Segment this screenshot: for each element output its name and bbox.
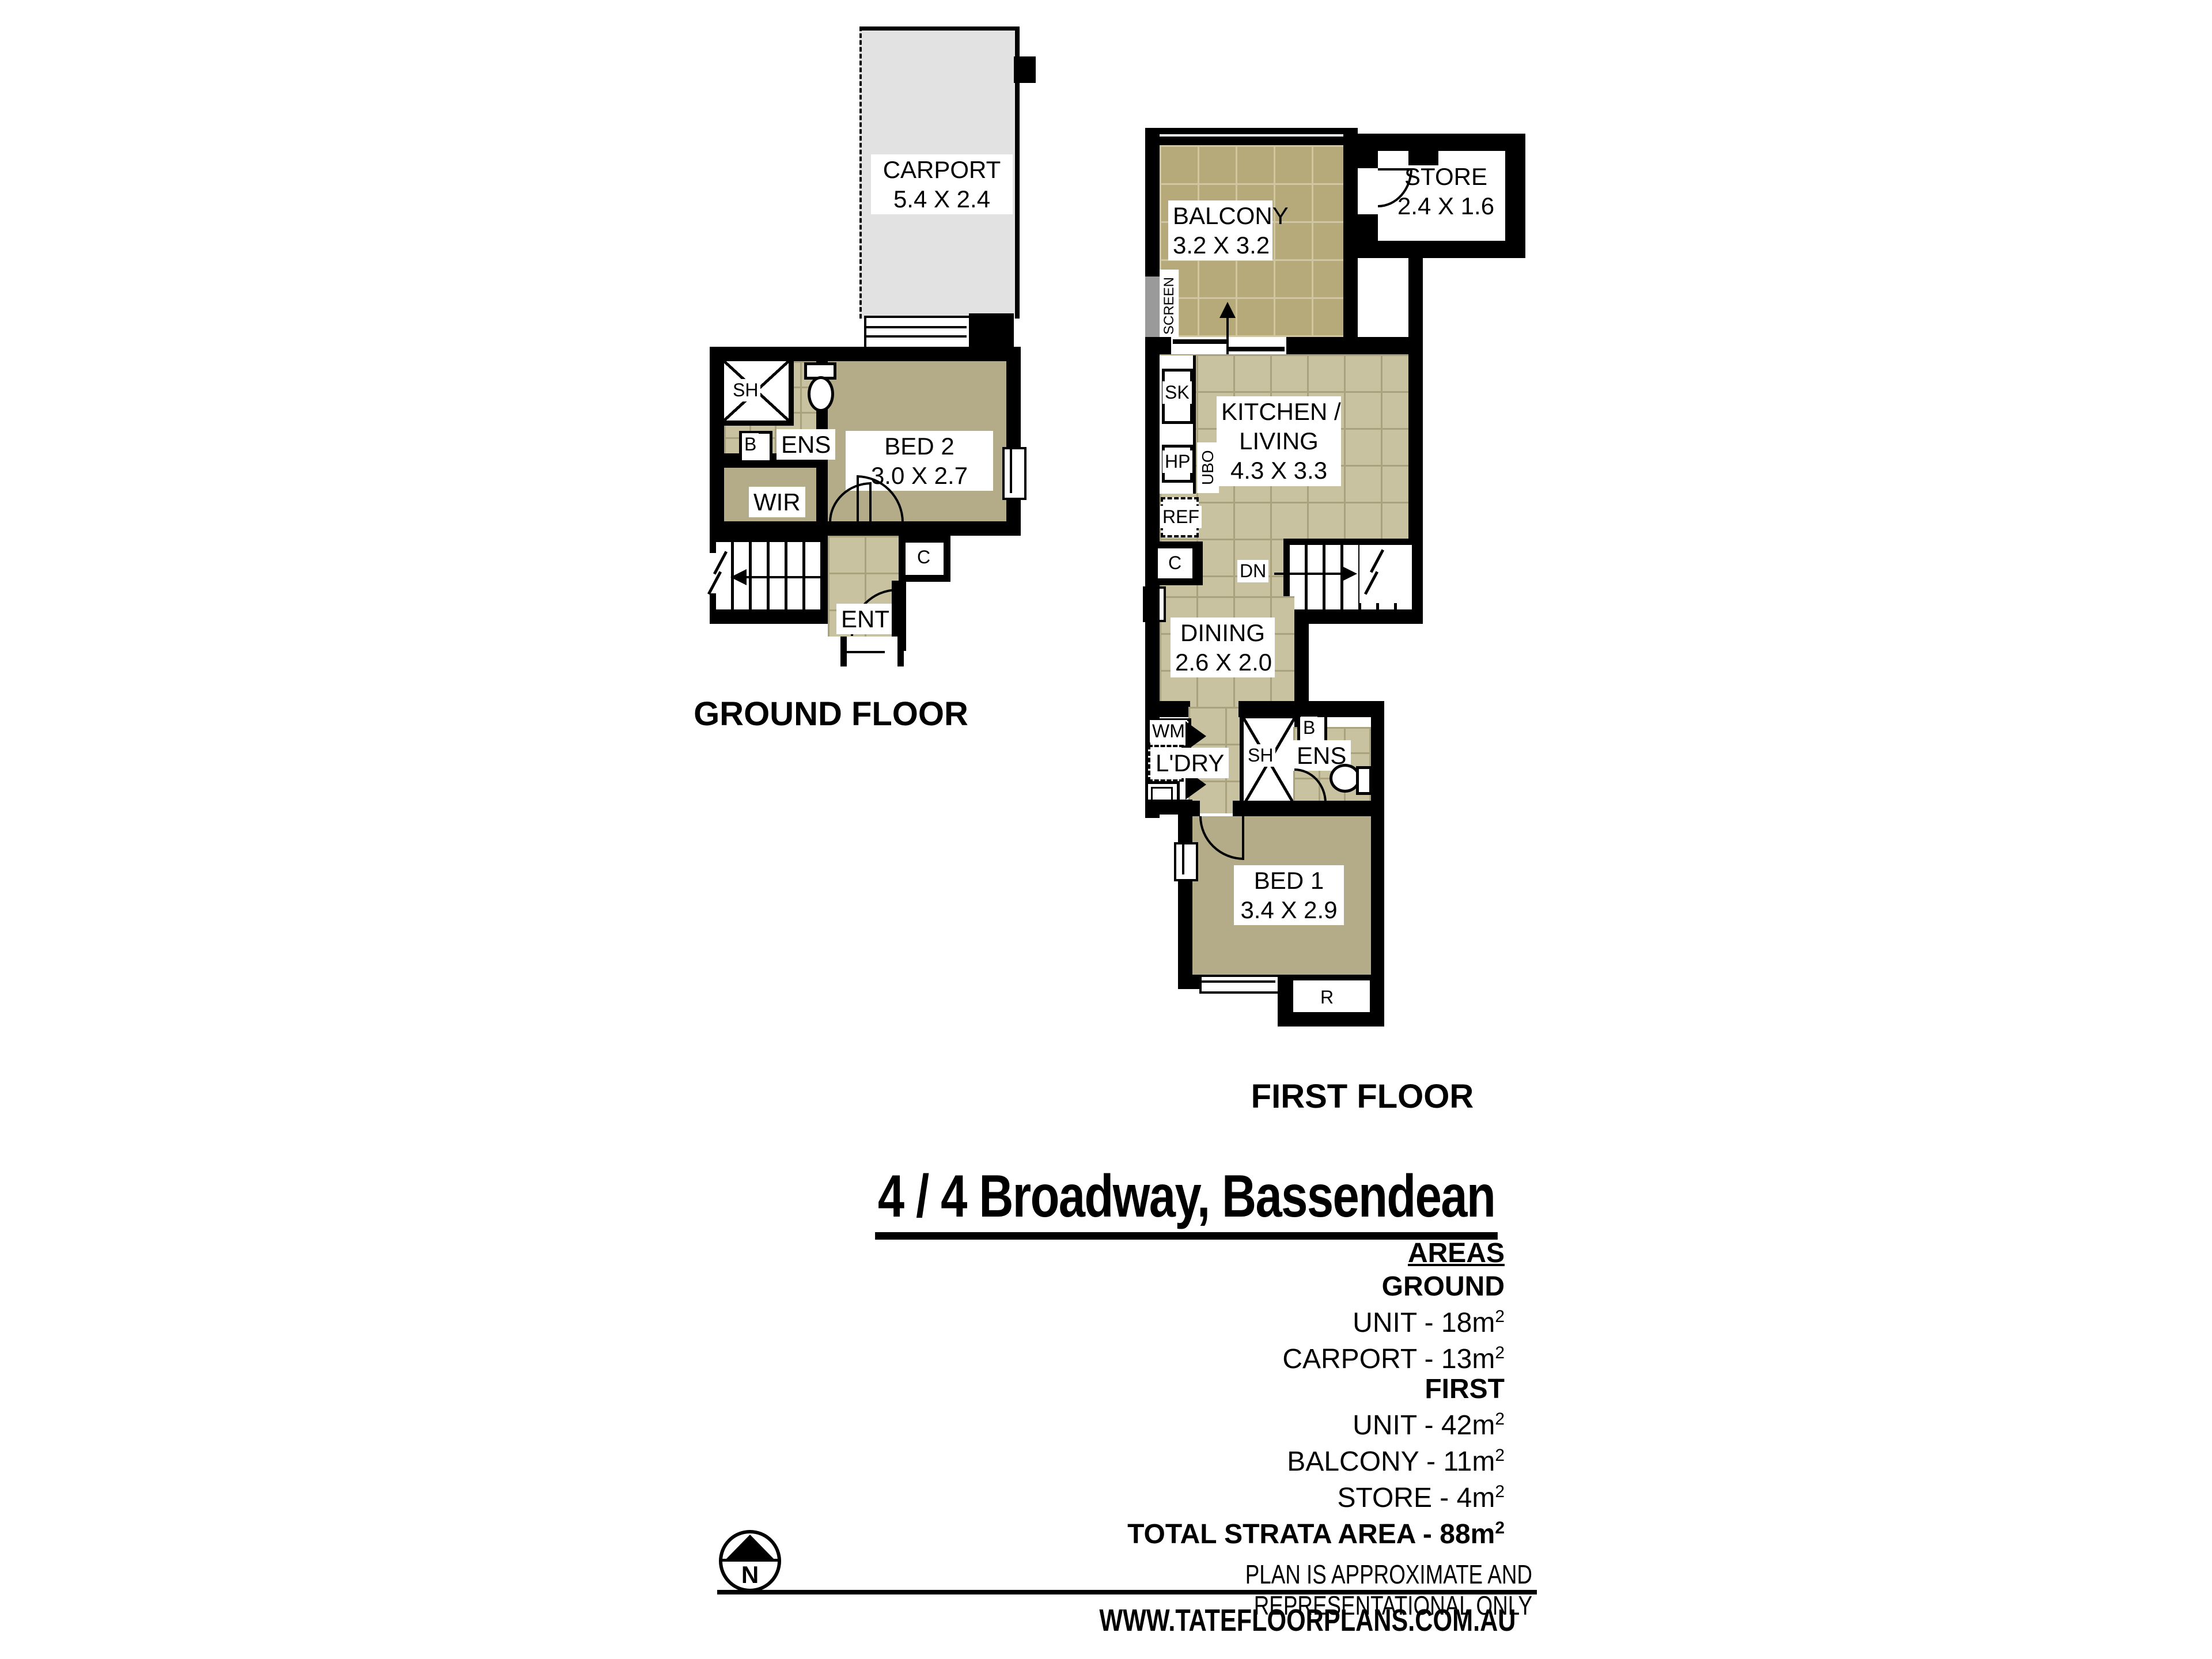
carport-dims: 5.4 X 2.4 [876,184,1008,214]
store-name: STORE [1394,162,1498,191]
areas-ground-heading: GROUND [922,1272,1505,1302]
ubo-label: UBO [1197,442,1219,493]
ent-label: ENT [836,604,894,634]
dining-name: DINING [1175,618,1270,647]
kitchen-dims: 4.3 X 3.3 [1221,456,1336,485]
stair-arrow-line [1274,573,1342,575]
north-triangle [725,1535,775,1560]
wall [1014,56,1036,83]
areas-first-heading: FIRST [922,1374,1505,1404]
kitchen-name1: KITCHEN / [1221,397,1336,426]
wall [1145,337,1171,354]
wall [1178,801,1192,975]
sliding-door-leaf [1173,339,1228,344]
toilet-tank-first [1356,766,1372,795]
screen-strip [1145,276,1160,337]
areas-table: AREAS GROUND UNIT - 18m2 CARPORT - 13m2 … [922,1238,1505,1550]
dining-dims: 2.6 X 2.0 [1175,647,1270,677]
window-mullion [1182,844,1184,874]
robe-label: R [1318,986,1336,1009]
area-row: CARPORT - 13m2 [922,1338,1505,1374]
wall [1408,258,1423,339]
bed1-name: BED 1 [1238,866,1339,895]
ground-floor-title: GROUND FLOOR [680,695,982,733]
entry-arrow-head [1219,302,1236,318]
area-row: STORE - 4m2 [922,1477,1505,1513]
shower-first-label: SH [1245,744,1275,767]
window [1174,842,1198,881]
dn-label: DN [1237,560,1268,582]
floorplan-page: CARPORT 5.4 X 2.4 SH B ENS WIR BED 2 3.0… [0,0,2212,1659]
sliding-door-leaf [1227,347,1285,351]
garage-door-line [866,335,967,338]
bed1-dims: 3.4 X 2.9 [1238,895,1339,925]
garage-door-line [866,326,967,328]
stair-arrow-head [730,569,747,585]
north-compass-icon: N [719,1530,781,1592]
hotplate-label: HP [1162,450,1192,473]
porch-step-line [847,651,885,653]
basin-label: B [742,433,759,456]
ldry-label: L'DRY [1151,748,1229,778]
balcony-label: BALCONY 3.2 X 3.2 [1168,200,1272,260]
fridge-label: REF [1160,506,1202,528]
stair-arrow-head [1341,566,1357,582]
store-label: STORE 2.4 X 1.6 [1389,161,1502,221]
page-title: 4 / 4 Broadway, Bassendean [783,1162,1590,1240]
wall [1145,128,1358,145]
bed2-name: BED 2 [850,431,988,461]
kitchen-name2: LIVING [1221,426,1336,456]
balcony-dims: 3.2 X 3.2 [1173,230,1268,260]
cupboard-label: C [915,546,933,569]
area-row: BALCONY - 11m2 [922,1441,1505,1477]
screen-label: SCREEN [1160,270,1179,342]
carport-label: CARPORT 5.4 X 2.4 [871,154,1013,214]
wall [1371,819,1384,975]
wall [1233,801,1384,816]
balcony-name: BALCONY [1173,201,1268,230]
page-title-text: 4 / 4 Broadway, Bassendean [876,1162,1498,1240]
footer-rule [717,1590,1537,1594]
garage-door [864,316,974,349]
areas-total-row: TOTAL STRATA AREA - 88m2 [922,1513,1505,1550]
wall [710,609,828,624]
area-row: UNIT - 42m2 [922,1404,1505,1441]
basin-first-label: B [1301,717,1317,739]
wall [1283,609,1423,624]
wall [1145,701,1190,717]
balcony-rail-line [1150,134,1353,137]
areas-heading: AREAS [922,1238,1505,1268]
window [1002,447,1027,500]
toilet-bowl [808,376,834,412]
window-line [1202,980,1275,983]
first-floor-title: FIRST FLOOR [1238,1077,1486,1116]
wall [1286,337,1423,354]
laundry-door-mark [1185,721,1206,751]
window-mullion [1010,449,1012,493]
carport-name: CARPORT [876,155,1008,184]
kitchen-label: KITCHEN / LIVING 4.3 X 3.3 [1217,396,1341,486]
shower-label: SH [730,379,760,402]
stair-arrow-line [744,576,834,578]
wall [1343,128,1358,337]
store-door-gap [1358,168,1378,214]
window [1199,975,1282,994]
north-letter: N [722,1561,778,1589]
wir-label: WIR [749,487,805,517]
bed1-label: BED 1 3.4 X 2.9 [1234,865,1344,925]
website: WWW.TATEFLOORPLANS.COM.AU [1020,1603,1596,1638]
dining-label: DINING 2.6 X 2.0 [1171,618,1275,677]
wall [969,313,1014,347]
wm-label: WM [1150,720,1187,743]
area-row: UNIT - 18m2 [922,1302,1505,1338]
ens-ground-label: ENS [777,429,835,460]
store-dims: 2.4 X 1.6 [1394,191,1498,221]
cupboard-first-label: C [1166,552,1184,574]
sink-label: SK [1162,381,1192,404]
